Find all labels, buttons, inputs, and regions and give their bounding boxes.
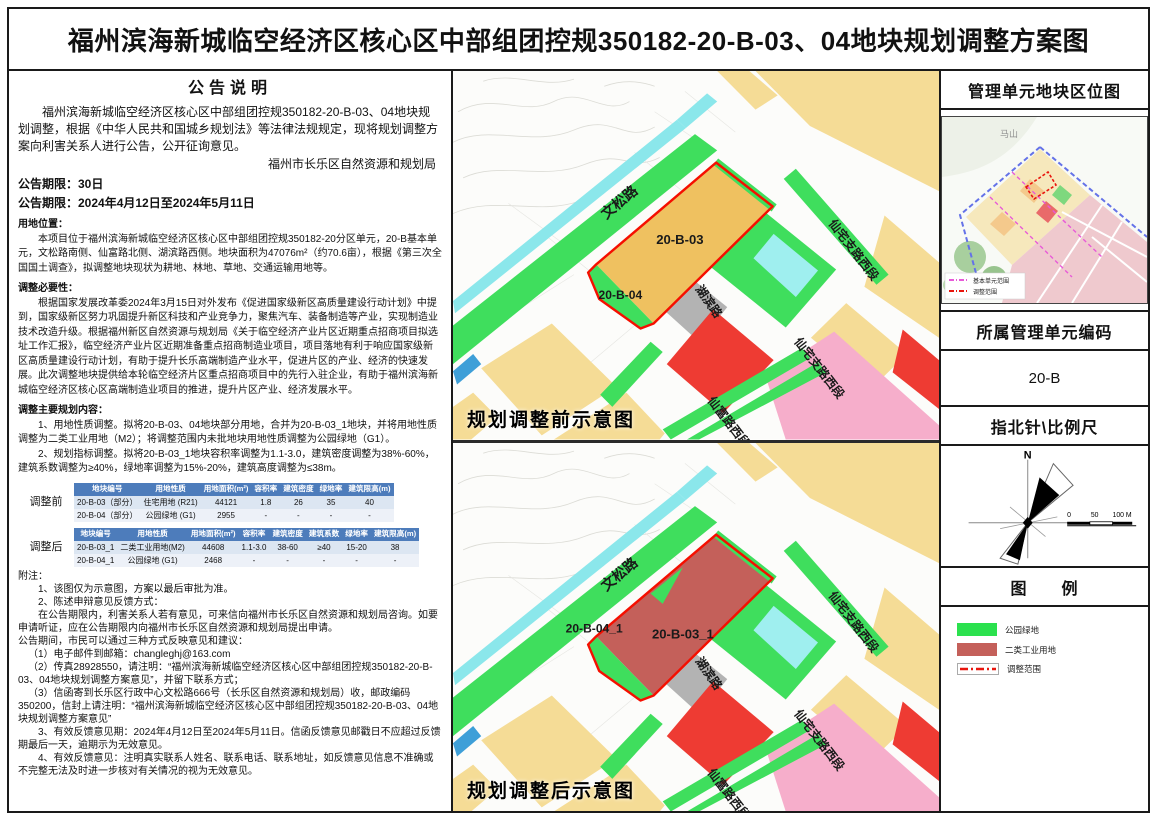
note-item: 2、陈述申辩意见反馈方式： (18, 596, 442, 609)
col-header: 绿地率 (342, 528, 371, 541)
note-item: （3）信函寄到长乐区行政中心文松路666号（长乐区自然资源和规划局）收，邮政编码… (18, 687, 442, 726)
adjust-range-symbol (957, 663, 999, 675)
north-arrow-icon: N 0 50 100 M (941, 447, 1148, 565)
table-row: 20-B-04（部分） 公园绿地 (G1) 2955 - - - - (74, 509, 394, 522)
minimap-legend-label-2: 调整范围 (973, 288, 997, 296)
before-table-block: 调整前 地块编号 用地性质 用地面积(m²) 容积率 建筑密度 绿地率 建筑限高… (18, 483, 442, 522)
legend-label: 二类工业用地 (1005, 644, 1056, 656)
necessity-heading: 调整必要性： (18, 282, 442, 297)
compass-heading: 指北针\比例尺 (941, 407, 1148, 446)
content-item-2: 2、规划指标调整。拟将20-B-03_1地块容积率调整为1.1-3.0，建筑密度… (18, 448, 442, 477)
legend-heading: 图 例 (941, 568, 1148, 607)
col-header: 地块编号 (74, 528, 117, 541)
parcel-label-20-b-03-1: 20-B-03_1 (652, 626, 714, 641)
page-title: 福州滨海新城临空经济区核心区中部组团控规350182-20-B-03、04地块规… (68, 21, 1089, 58)
note-item: 公告期间，市民可以通过三种方式反映意见和建议： (18, 635, 442, 648)
note-item: 4、有效反馈意见：注明真实联系人姓名、联系电话、联系地址，如反馈意见信息不准确或… (18, 752, 442, 778)
notice-period-days: 公告期限：30日 (18, 176, 442, 193)
col-header: 用地性质 (140, 483, 200, 496)
content-heading: 调整主要规划内容： (18, 404, 442, 419)
scale-tick-0: 0 (1067, 512, 1071, 519)
minimap-legend-label-1: 基本单元范围 (973, 277, 1009, 285)
map-after-caption: 规划调整后示意图 (467, 776, 635, 803)
note-item: （1）电子邮件到邮箱：changleghj@163.com (18, 648, 442, 661)
parcel-label-20-b-04-1: 20-B-04_1 (566, 621, 623, 635)
note-item: 3、有效反馈意见期：2024年4月12日至2024年5月11日。信函反馈意见邮戳… (18, 726, 442, 752)
announcement-intro: 福州滨海新城临空经济区核心区中部组团控规350182-20-B-03、04地块规… (18, 104, 442, 155)
notes-section: 附注： 1、该图仅为示意图，方案以最后审批为准。 2、陈述申辩意见反馈方式： 在… (18, 570, 442, 778)
col-header: 建筑密度 (269, 528, 305, 541)
col-header: 建筑限高(m) (371, 528, 419, 541)
page: 福州滨海新城临空经济区核心区中部组团控规350182-20-B-03、04地块规… (7, 7, 1150, 813)
agency-name: 福州市长乐区自然资源和规划局 (18, 156, 436, 173)
unit-code: 20-B (941, 351, 1148, 407)
after-table-label: 调整后 (18, 540, 74, 556)
scale-tick-50: 50 (1091, 512, 1099, 519)
unit-code-heading: 所属管理单元编码 (941, 312, 1148, 351)
map-after-panel: 文松路 湖滨路 仙宅支路西段 仙宅支路西段 仙富路西段 20-B-03_1 20… (453, 443, 939, 812)
legend-section: 公园绿地 二类工业用地 调整范围 (941, 607, 1148, 811)
legend-item-industry: 二类工业用地 (957, 643, 1148, 656)
park-green-swatch (957, 623, 997, 636)
table-row: 20-B-03（部分） 住宅用地 (R21) 44121 1.8 26 35 4… (74, 496, 394, 509)
before-table: 地块编号 用地性质 用地面积(m²) 容积率 建筑密度 绿地率 建筑限高(m) … (74, 483, 394, 522)
location-text: 本项目位于福州滨海新城临空经济区核心区中部组团控规350182-20分区单元，2… (18, 233, 442, 277)
legend-item-adjust-range: 调整范围 (957, 663, 1148, 675)
map-before: 文松路 湖滨路 仙宅支路西段 仙宅支路西段 仙富路西段 20-B-03 20-B… (453, 71, 939, 440)
col-header: 用地面积(m²) (201, 483, 252, 496)
sidebar: 管理单元地块区位图 马山 (941, 71, 1148, 811)
after-table-block: 调整后 地块编号 用地性质 用地面积(m²) 容积率 建筑密度 建筑系数 绿地率… (18, 528, 442, 567)
minimap-svg: 马山 (941, 116, 1148, 304)
map-before-panel: 文松路 湖滨路 仙宅支路西段 仙宅支路西段 仙富路西段 20-B-03 20-B… (453, 71, 939, 443)
col-header: 建筑限高(m) (345, 483, 393, 496)
col-header: 绿地率 (317, 483, 346, 496)
col-header: 用地性质 (117, 528, 187, 541)
map-after: 文松路 湖滨路 仙宅支路西段 仙宅支路西段 仙富路西段 20-B-03_1 20… (453, 443, 939, 812)
content-row: 公告说明 福州滨海新城临空经济区核心区中部组团控规350182-20-B-03、… (9, 71, 1148, 811)
scale-bar: 0 50 100 M (1067, 512, 1136, 526)
note-item: （2）传真28928550，请注明：“福州滨海新城临空经济区核心区中部组团控规3… (18, 661, 442, 687)
location-minimap: 马山 (941, 110, 1148, 312)
col-header: 容积率 (239, 528, 270, 541)
after-table: 地块编号 用地性质 用地面积(m²) 容积率 建筑密度 建筑系数 绿地率 建筑限… (74, 528, 419, 567)
parcel-label-20-b-04: 20-B-04 (599, 288, 643, 302)
notes-heading: 附注： (18, 570, 442, 583)
title-bar: 福州滨海新城临空经济区核心区中部组团控规350182-20-B-03、04地块规… (9, 9, 1148, 71)
location-heading: 用地位置： (18, 218, 442, 233)
note-item: 1、该图仅为示意图，方案以最后审批为准。 (18, 583, 442, 596)
industry-swatch (957, 643, 997, 656)
announcement-panel: 公告说明 福州滨海新城临空经济区核心区中部组团控规350182-20-B-03、… (9, 71, 453, 811)
location-map-heading: 管理单元地块区位图 (941, 71, 1148, 110)
legend-label: 调整范围 (1007, 663, 1041, 675)
notice-period-dates: 公告期限：2024年4月12日至2024年5月11日 (18, 195, 442, 212)
parcel-label-20-b-03: 20-B-03 (656, 232, 703, 247)
north-label: N (1024, 450, 1032, 462)
scale-tick-100: 100 M (1113, 512, 1132, 519)
maps-column: 文松路 湖滨路 仙宅支路西段 仙宅支路西段 仙富路西段 20-B-03 20-B… (453, 71, 941, 811)
necessity-text: 根据国家发展改革委2024年3月15日对外发布《促进国家级新区高质量建设行动计划… (18, 297, 442, 399)
col-header: 建筑系数 (306, 528, 342, 541)
before-table-label: 调整前 (18, 495, 74, 511)
col-header: 用地面积(m²) (188, 528, 239, 541)
col-header: 容积率 (251, 483, 280, 496)
table-row: 20-B-03_1 二类工业用地(M2) 44608 1.1-3.0 38-60… (74, 541, 419, 554)
col-header: 建筑密度 (280, 483, 316, 496)
minimap-park (954, 241, 986, 273)
legend-item-park-green: 公园绿地 (957, 623, 1148, 636)
announcement-heading: 公告说明 (18, 77, 442, 100)
content-item-1: 1、用地性质调整。拟将20-B-03、04地块部分用地，合并为20-B-03_1… (18, 419, 442, 448)
compass-section: N 0 50 100 M (941, 446, 1148, 568)
legend-label: 公园绿地 (1005, 624, 1039, 636)
table-row: 20-B-04_1 公园绿地 (G1) 2468 - - - - - (74, 554, 419, 567)
note-item: 在公告期限内，利害关系人若有意见，可来信向福州市长乐区自然资源和规划局咨询。如要… (18, 609, 442, 635)
map-before-caption: 规划调整前示意图 (467, 405, 635, 432)
col-header: 地块编号 (74, 483, 140, 496)
mountain-label: 马山 (1000, 129, 1018, 139)
